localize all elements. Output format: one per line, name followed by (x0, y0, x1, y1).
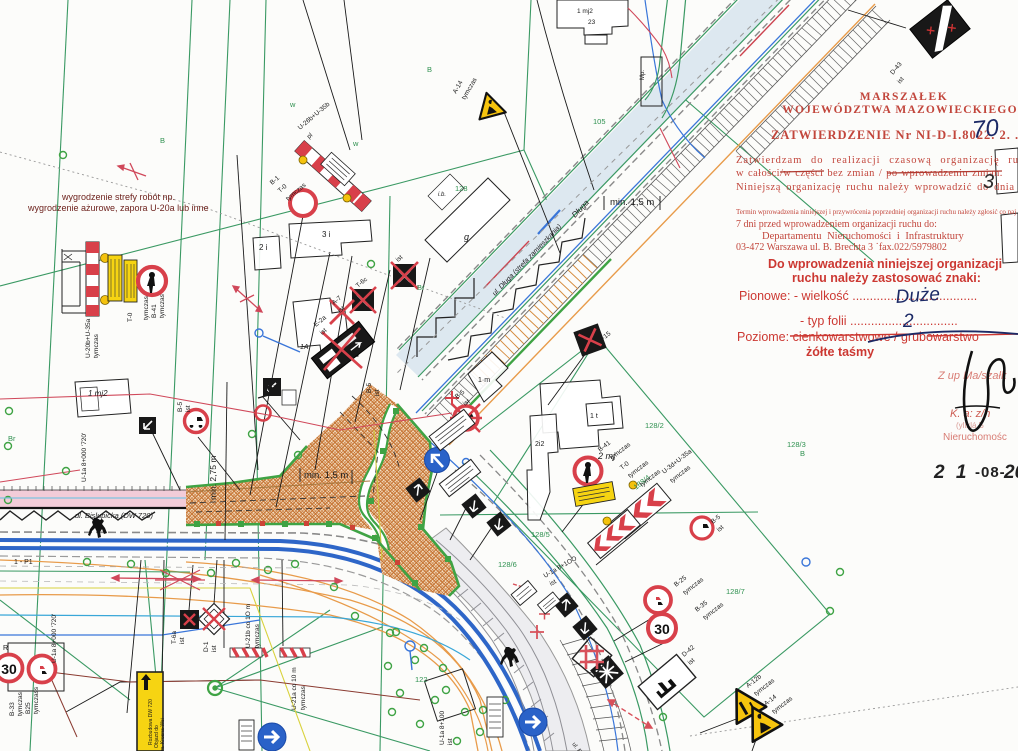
svg-text:tymczas: tymczas (461, 76, 479, 101)
svg-text:ist: ist (374, 389, 381, 396)
svg-text:Do wprowadzenia niniejszej org: Do wprowadzenia niniejszej organizacji (768, 257, 1002, 271)
svg-text:3 i: 3 i (322, 230, 331, 239)
svg-text:T-6a: T-6a (171, 631, 178, 644)
svg-text:tymczas: tymczas (300, 685, 307, 710)
svg-text:2 i: 2 i (259, 243, 268, 252)
svg-text:Duże: Duże (895, 284, 941, 308)
svg-text:pl: pl (306, 132, 315, 141)
svg-text:wygrodzenie ażurowe, zapora U-: wygrodzenie ażurowe, zapora U-20a lub in… (27, 203, 209, 213)
svg-text:128/6: 128/6 (498, 560, 517, 569)
svg-text:Zatwierdzam do realizacji czas: Zatwierdzam do realizacji czasową organi… (736, 155, 1018, 166)
svg-text:g: g (464, 232, 469, 242)
svg-text:B-33: B-33 (9, 702, 16, 716)
svg-text:T-0: T-0 (619, 460, 631, 472)
svg-text:ul. Bislupicka (DW 720): ul. Bislupicka (DW 720) (75, 511, 153, 520)
svg-text:B: B (427, 65, 432, 74)
svg-text:m. Krosna·Wsi: m. Krosna·Wsi (160, 718, 166, 751)
svg-text:Mp.: Mp. (640, 70, 646, 80)
svg-text:1·m: 1·m (478, 377, 490, 384)
svg-text:U-1a 8+000 '720': U-1a 8+000 '720' (51, 614, 58, 663)
svg-text:3: 3 (983, 171, 994, 193)
svg-text:WOJEWÓDZTWA MAZOWIECKIEGO: WOJEWÓDZTWA MAZOWIECKIEGO (782, 102, 1017, 116)
svg-text:D-43: D-43 (889, 61, 904, 77)
svg-text:U-20b+U-35a: U-20b+U-35a (85, 318, 92, 358)
svg-text:Departamentu Nieruchomości i I: Departamentu Nieruchomości i Infrastrukt… (762, 231, 964, 242)
svg-text:w: w (352, 139, 359, 148)
svg-text:-08-: -08- (975, 464, 1006, 481)
svg-text:B25: B25 (25, 702, 32, 714)
svg-text:Br: Br (417, 283, 425, 292)
svg-text:min. 1,5 m: min. 1,5 m (610, 197, 654, 208)
svg-text:B-5: B-5 (177, 402, 184, 413)
svg-text:min. 2,75 m: min. 2,75 m (208, 456, 218, 500)
svg-text:1 mj2: 1 mj2 (577, 8, 593, 15)
svg-text:128/5: 128/5 (531, 530, 550, 539)
svg-text:Pionowe: - wielkość ..........: Pionowe: - wielkość ....................… (739, 289, 977, 303)
svg-text:ruchu należy zastosować znaki:: ruchu należy zastosować znaki: (792, 271, 981, 285)
svg-text:ist: ist (447, 738, 454, 745)
svg-text:128/7: 128/7 (726, 587, 745, 596)
svg-text:7 dni przed wprowadzeniem orga: 7 dni przed wprowadzeniem organizacji ru… (736, 219, 937, 230)
svg-text:1 t: 1 t (590, 413, 598, 420)
svg-text:B: B (160, 136, 165, 145)
svg-text:T-0: T-0 (127, 312, 134, 322)
svg-text:B-25: B-25 (673, 574, 688, 588)
svg-text:2i2: 2i2 (535, 441, 544, 448)
svg-text:min. 1,5 m: min. 1,5 m (304, 470, 348, 481)
svg-text:ist: ist (549, 578, 558, 587)
svg-text:B-1: B-1 (269, 174, 282, 186)
svg-text:128/3: 128/3 (787, 440, 806, 449)
svg-text:Niniejszą organizację ruchu na: Niniejszą organizację ruchu należy wprow… (736, 182, 1018, 193)
svg-text:122: 122 (415, 675, 428, 684)
svg-text:1 - P1: 1 - P1 (14, 559, 33, 566)
svg-text:D-1: D-1 (203, 641, 210, 652)
svg-text:13.6: 13.6 (270, 385, 281, 391)
svg-text:tymczas: tymczas (159, 293, 166, 318)
svg-text:tymczass: tymczass (33, 686, 40, 714)
svg-text:U-26b+U-35b: U-26b+U-35b (297, 101, 332, 132)
svg-text:105: 105 (593, 117, 606, 126)
svg-text:U-1a 8+000 '720': U-1a 8+000 '720' (81, 433, 88, 482)
svg-text:128/2: 128/2 (645, 421, 664, 430)
svg-text:30: 30 (654, 621, 670, 637)
svg-text:ist: ist (896, 76, 906, 86)
svg-text:ist: ist (185, 405, 192, 412)
svg-text:1 mj2: 1 mj2 (88, 389, 108, 398)
svg-text:żółte taśmy: żółte taśmy (806, 345, 874, 359)
svg-text:MARSZAŁEK: MARSZAŁEK (860, 91, 949, 103)
svg-text:- typ folii ..................: - typ folii ............................… (800, 314, 958, 328)
svg-text:03-472 Warszawa ul. B. Brechta: 03-472 Warszawa ul. B. Brechta 3 ˙fax.02… (736, 242, 947, 253)
svg-text:30: 30 (1, 661, 17, 677)
svg-text:U-21b co 1O m: U-21b co 1O m (245, 604, 252, 648)
svg-text:128: 128 (455, 184, 468, 193)
svg-text:tymczas: tymczas (143, 295, 150, 320)
svg-text:2: 2 (902, 311, 914, 332)
svg-text:1A: 1A (300, 344, 309, 351)
svg-text:ist: ist (211, 645, 218, 652)
svg-text:Z up Ma/szałk: Z up Ma/szałk (937, 370, 1007, 382)
svg-text:ist: ist (179, 637, 186, 644)
svg-text:B-5: B-5 (366, 383, 373, 394)
svg-text:ist: ist (687, 657, 697, 667)
svg-text:w: w (289, 100, 296, 109)
svg-text:U-1a 8+1OO: U-1a 8+1OO (543, 555, 579, 580)
svg-text:23: 23 (588, 19, 596, 26)
svg-text:i.b.: i.b. (438, 192, 446, 198)
svg-text:T-0: T-0 (277, 183, 289, 195)
svg-text:B-41: B-41 (151, 304, 158, 318)
svg-text:Br: Br (8, 434, 16, 443)
svg-text:T-6c: T-6c (355, 276, 370, 290)
svg-text:U-21a co 10 m: U-21a co 10 m (291, 667, 298, 710)
svg-text:R: R (3, 645, 8, 652)
svg-text:ist: ist (395, 254, 405, 264)
svg-text:w całości/w części bez zmian /: w całości/w części bez zmian / po wprowa… (736, 168, 1003, 179)
svg-text:D-42: D-42 (681, 644, 697, 659)
svg-text:B: B (800, 449, 805, 458)
svg-text:Termin wprowadzenia niniejszej: Termin wprowadzenia niniejszej i przywró… (736, 208, 1016, 216)
svg-text:20: 20 (1003, 462, 1018, 483)
svg-text:tymczas: tymczas (93, 333, 100, 358)
svg-text:Nieruchomośc: Nieruchomośc (943, 432, 1007, 443)
svg-text:tymczas: tymczas (254, 623, 261, 648)
svg-text:ist: ist (716, 524, 726, 534)
svg-text:tymczas: tymczas (17, 691, 24, 716)
svg-text:70: 70 (971, 114, 1001, 144)
svg-text:wygrodzenie strefy robót np.: wygrodzenie strefy robót np. (61, 192, 175, 202)
svg-text:2 1: 2 1 (933, 462, 969, 483)
svg-text:U-1a 8+100: U-1a 8+100 (439, 710, 446, 745)
